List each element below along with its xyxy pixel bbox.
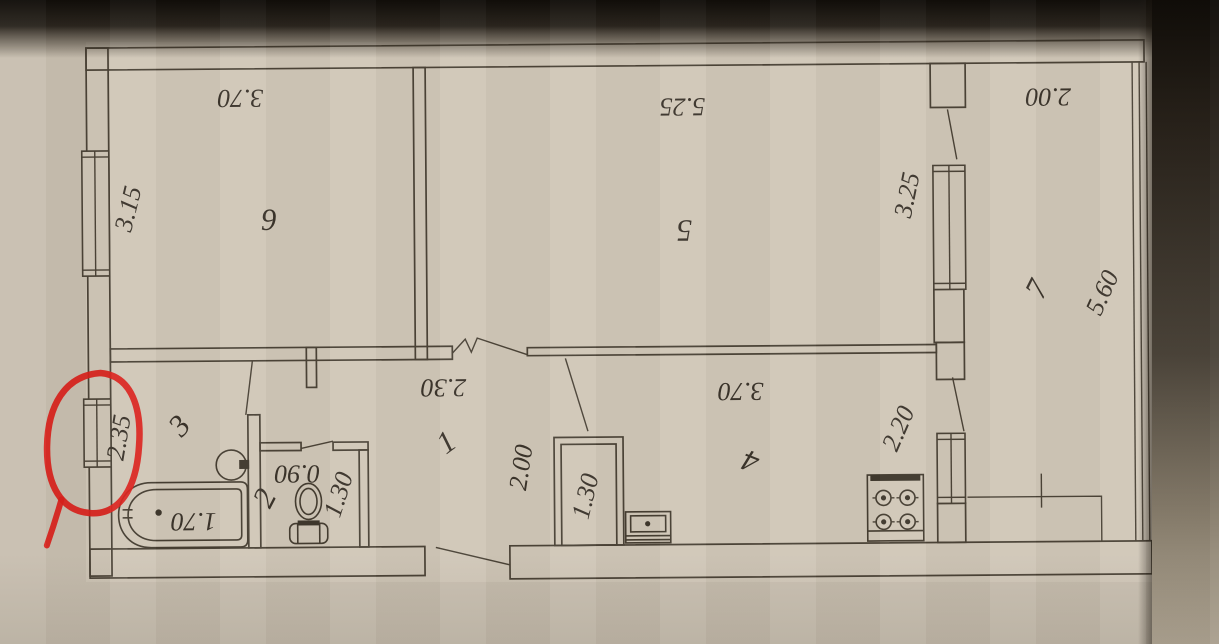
- stove-handle: [870, 475, 920, 481]
- plan-paper: [86, 42, 1152, 582]
- window-room5-balcony-icon: [933, 165, 966, 289]
- dim-room6-width: 3.70: [217, 84, 264, 113]
- dim-balcony-width: 2.00: [1025, 82, 1071, 111]
- dim-bathtub: 1.70: [171, 507, 217, 536]
- dim-wc-width: 0.90: [274, 459, 320, 488]
- floorplan-photo: 3.70 3.15 6 5.25 3.25 5 2.00 5.60 7 2.30…: [0, 0, 1219, 644]
- room5-number: 5: [676, 213, 692, 248]
- bathtub-drain-dot: [155, 509, 161, 515]
- dim-hall-width: 2.30: [421, 373, 467, 402]
- dim-kitchen-width: 3.70: [718, 377, 765, 406]
- room6-number: 6: [261, 203, 277, 238]
- photo-right-shadow: [1152, 0, 1219, 644]
- photo-right-feather: [1138, 0, 1154, 644]
- washbasin-tap-icon: [239, 460, 249, 469]
- sink-drain-dot: [645, 521, 650, 526]
- floorplan-svg: 3.70 3.15 6 5.25 3.25 5 2.00 5.60 7 2.30…: [0, 0, 1219, 644]
- photo-top-shadow: [0, 0, 1219, 58]
- dim-room5-width: 5.25: [660, 92, 706, 121]
- toilet-seat-hinge: [298, 520, 320, 525]
- window-room6-icon: [82, 151, 110, 276]
- window-kitchen-balcony-icon: [937, 433, 966, 503]
